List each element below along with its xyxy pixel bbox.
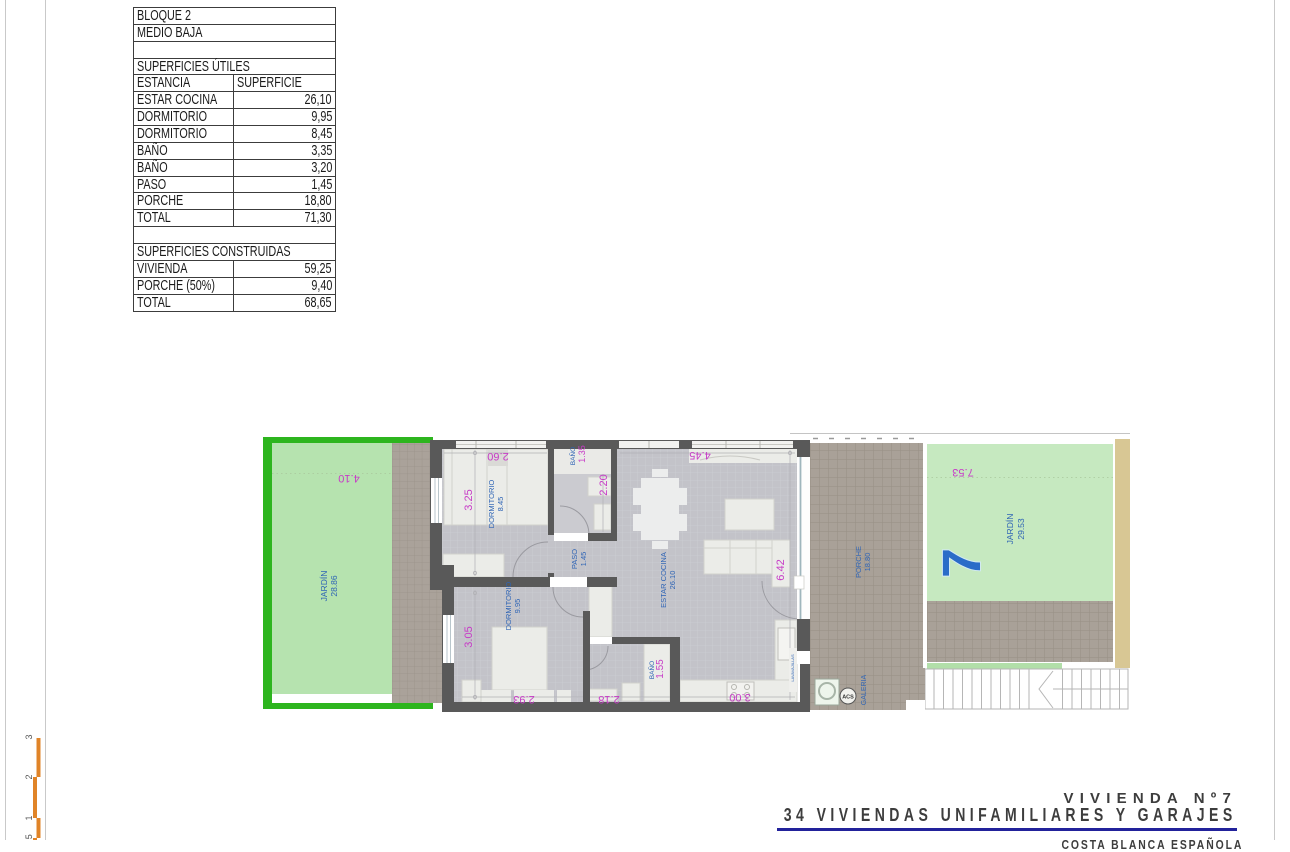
svg-text:3.25: 3.25 (463, 489, 475, 510)
svg-text:28.86: 28.86 (329, 575, 339, 597)
svg-text:3.05: 3.05 (463, 626, 475, 647)
svg-text:1.45: 1.45 (579, 552, 588, 567)
svg-text:PASO: PASO (570, 549, 579, 569)
svg-text:DORMITORIO: DORMITORIO (487, 480, 496, 529)
svg-text:1.35: 1.35 (577, 445, 587, 463)
svg-text:1.55: 1.55 (655, 659, 666, 679)
svg-text:2.93: 2.93 (513, 693, 534, 705)
svg-text:29.53: 29.53 (1016, 518, 1026, 540)
svg-text:6.42: 6.42 (775, 559, 787, 580)
svg-text:3: 3 (24, 734, 34, 739)
svg-text:LAVAVAJILLAS: LAVAVAJILLAS (790, 654, 795, 682)
svg-text:4.10: 4.10 (338, 472, 359, 484)
svg-text:2.60: 2.60 (487, 450, 508, 462)
svg-text:18.80: 18.80 (863, 553, 872, 572)
svg-text:ESTAR COCINA: ESTAR COCINA (659, 552, 668, 608)
svg-text:8.45: 8.45 (496, 497, 505, 512)
svg-text:26.10: 26.10 (668, 571, 677, 590)
svg-text:2.20: 2.20 (598, 474, 610, 495)
svg-text:PORCHE: PORCHE (854, 546, 863, 578)
svg-text:1: 1 (24, 815, 34, 820)
svg-text:JARDÍN: JARDÍN (319, 571, 329, 602)
svg-text:GALERIA: GALERIA (861, 675, 868, 706)
svg-text:DORMITORIO: DORMITORIO (504, 582, 513, 631)
svg-text:BAÑO: BAÑO (647, 661, 656, 679)
svg-text:.5: .5 (24, 834, 34, 840)
svg-text:2.18: 2.18 (598, 693, 619, 705)
svg-text:3.00: 3.00 (729, 691, 750, 703)
svg-text:2: 2 (24, 774, 34, 779)
svg-text:7.53: 7.53 (952, 466, 973, 478)
svg-text:BAÑO: BAÑO (568, 447, 577, 465)
svg-text:ACS: ACS (842, 695, 854, 701)
svg-text:7: 7 (932, 548, 992, 578)
svg-text:4.45: 4.45 (689, 449, 710, 461)
svg-text:9.95: 9.95 (513, 599, 522, 614)
svg-text:JARDÍN: JARDÍN (1005, 514, 1015, 545)
